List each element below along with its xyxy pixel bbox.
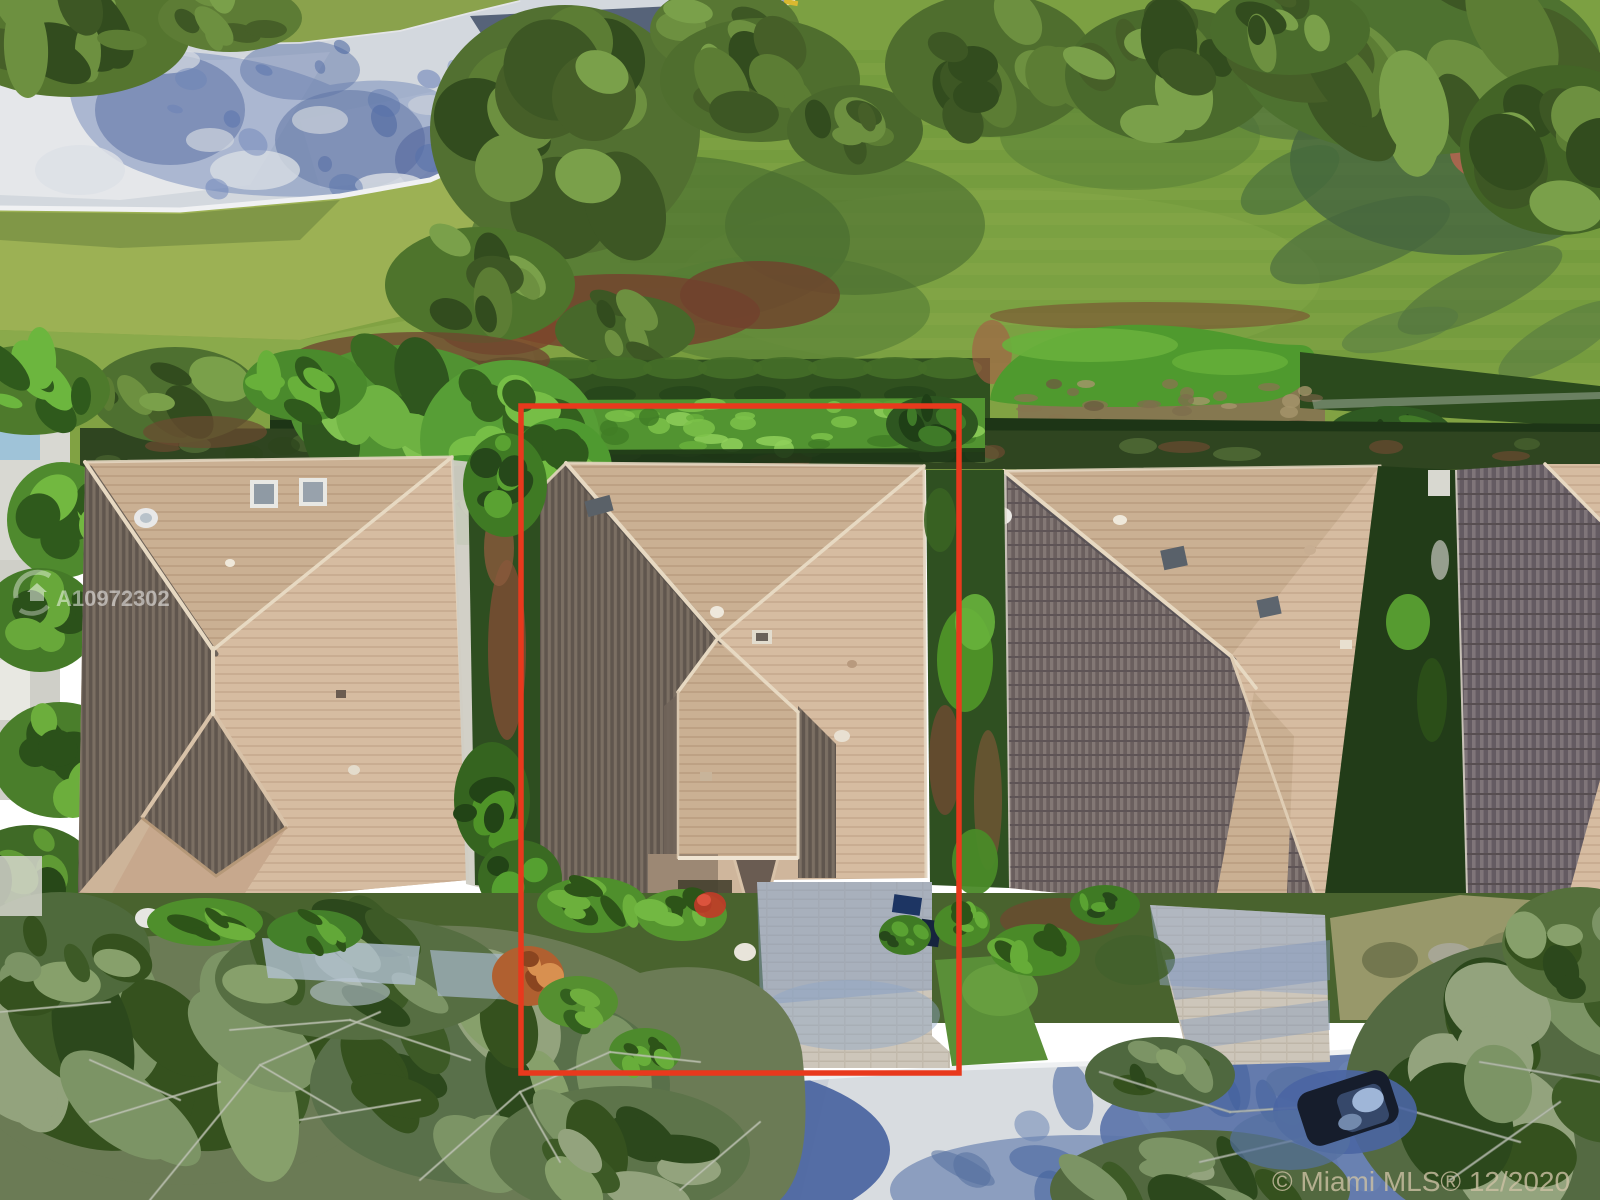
svg-text:A10972302: A10972302 (56, 586, 170, 611)
svg-text:© Miami MLS® 12/2020: © Miami MLS® 12/2020 (1272, 1166, 1570, 1197)
